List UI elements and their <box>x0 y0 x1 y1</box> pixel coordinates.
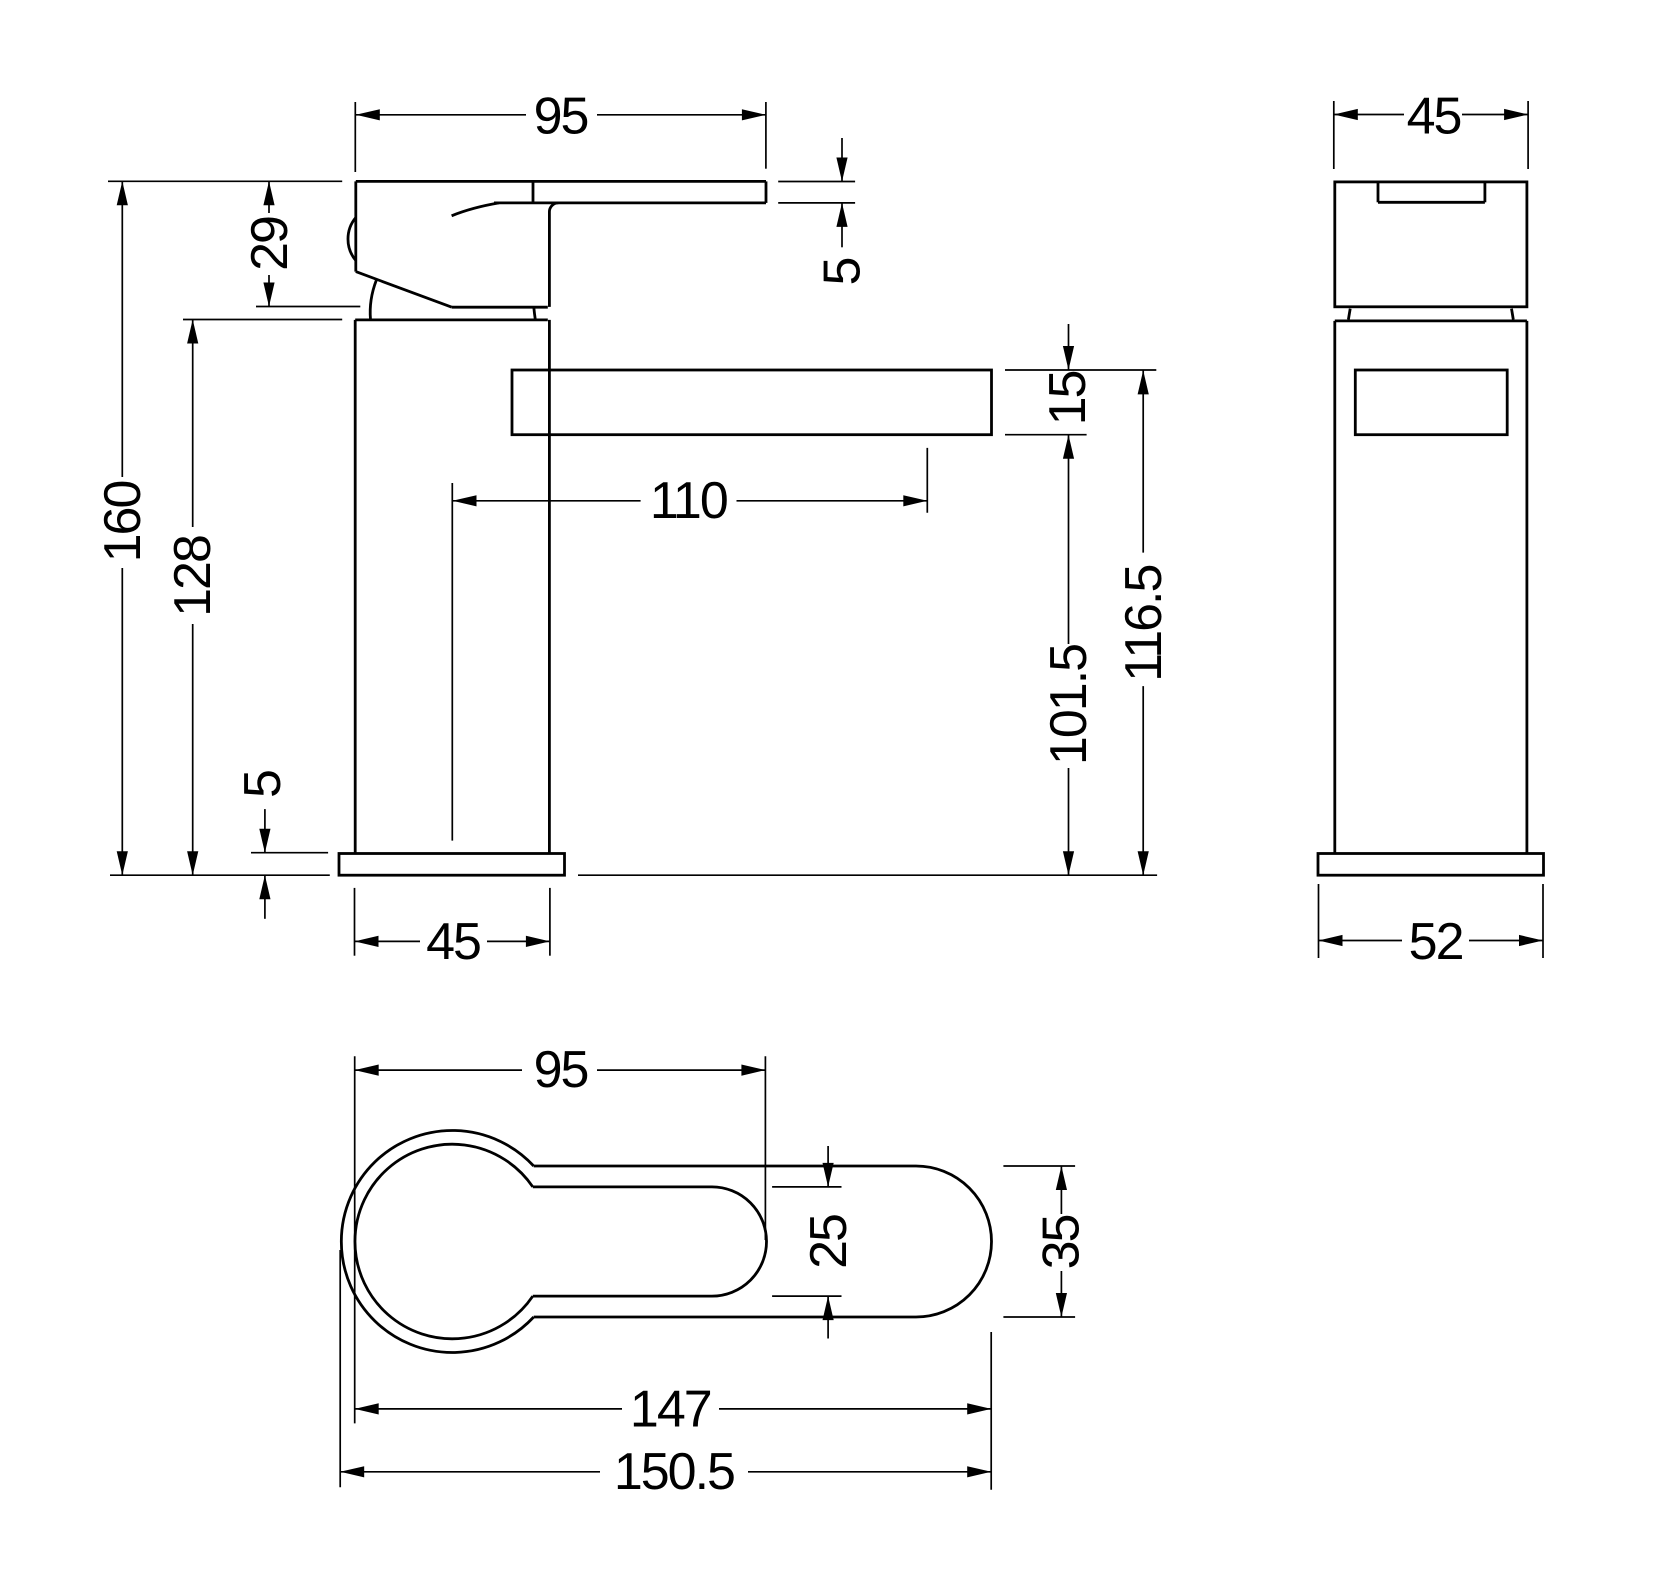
svg-text:29: 29 <box>241 217 299 271</box>
svg-text:52: 52 <box>1409 913 1463 971</box>
svg-text:128: 128 <box>164 536 222 617</box>
svg-text:160: 160 <box>94 482 152 563</box>
svg-text:5: 5 <box>814 258 872 285</box>
svg-text:25: 25 <box>800 1215 858 1269</box>
svg-text:150.5: 150.5 <box>614 1443 734 1501</box>
svg-text:35: 35 <box>1033 1216 1091 1270</box>
svg-text:147: 147 <box>630 1380 711 1438</box>
svg-text:5: 5 <box>234 771 292 798</box>
svg-text:116.5: 116.5 <box>1115 565 1173 681</box>
svg-text:110: 110 <box>650 472 727 530</box>
svg-text:45: 45 <box>1407 88 1461 146</box>
svg-text:95: 95 <box>534 88 588 146</box>
svg-text:15: 15 <box>1039 372 1097 426</box>
svg-text:95: 95 <box>534 1041 588 1099</box>
svg-text:101.5: 101.5 <box>1040 645 1098 765</box>
svg-text:45: 45 <box>426 913 480 971</box>
